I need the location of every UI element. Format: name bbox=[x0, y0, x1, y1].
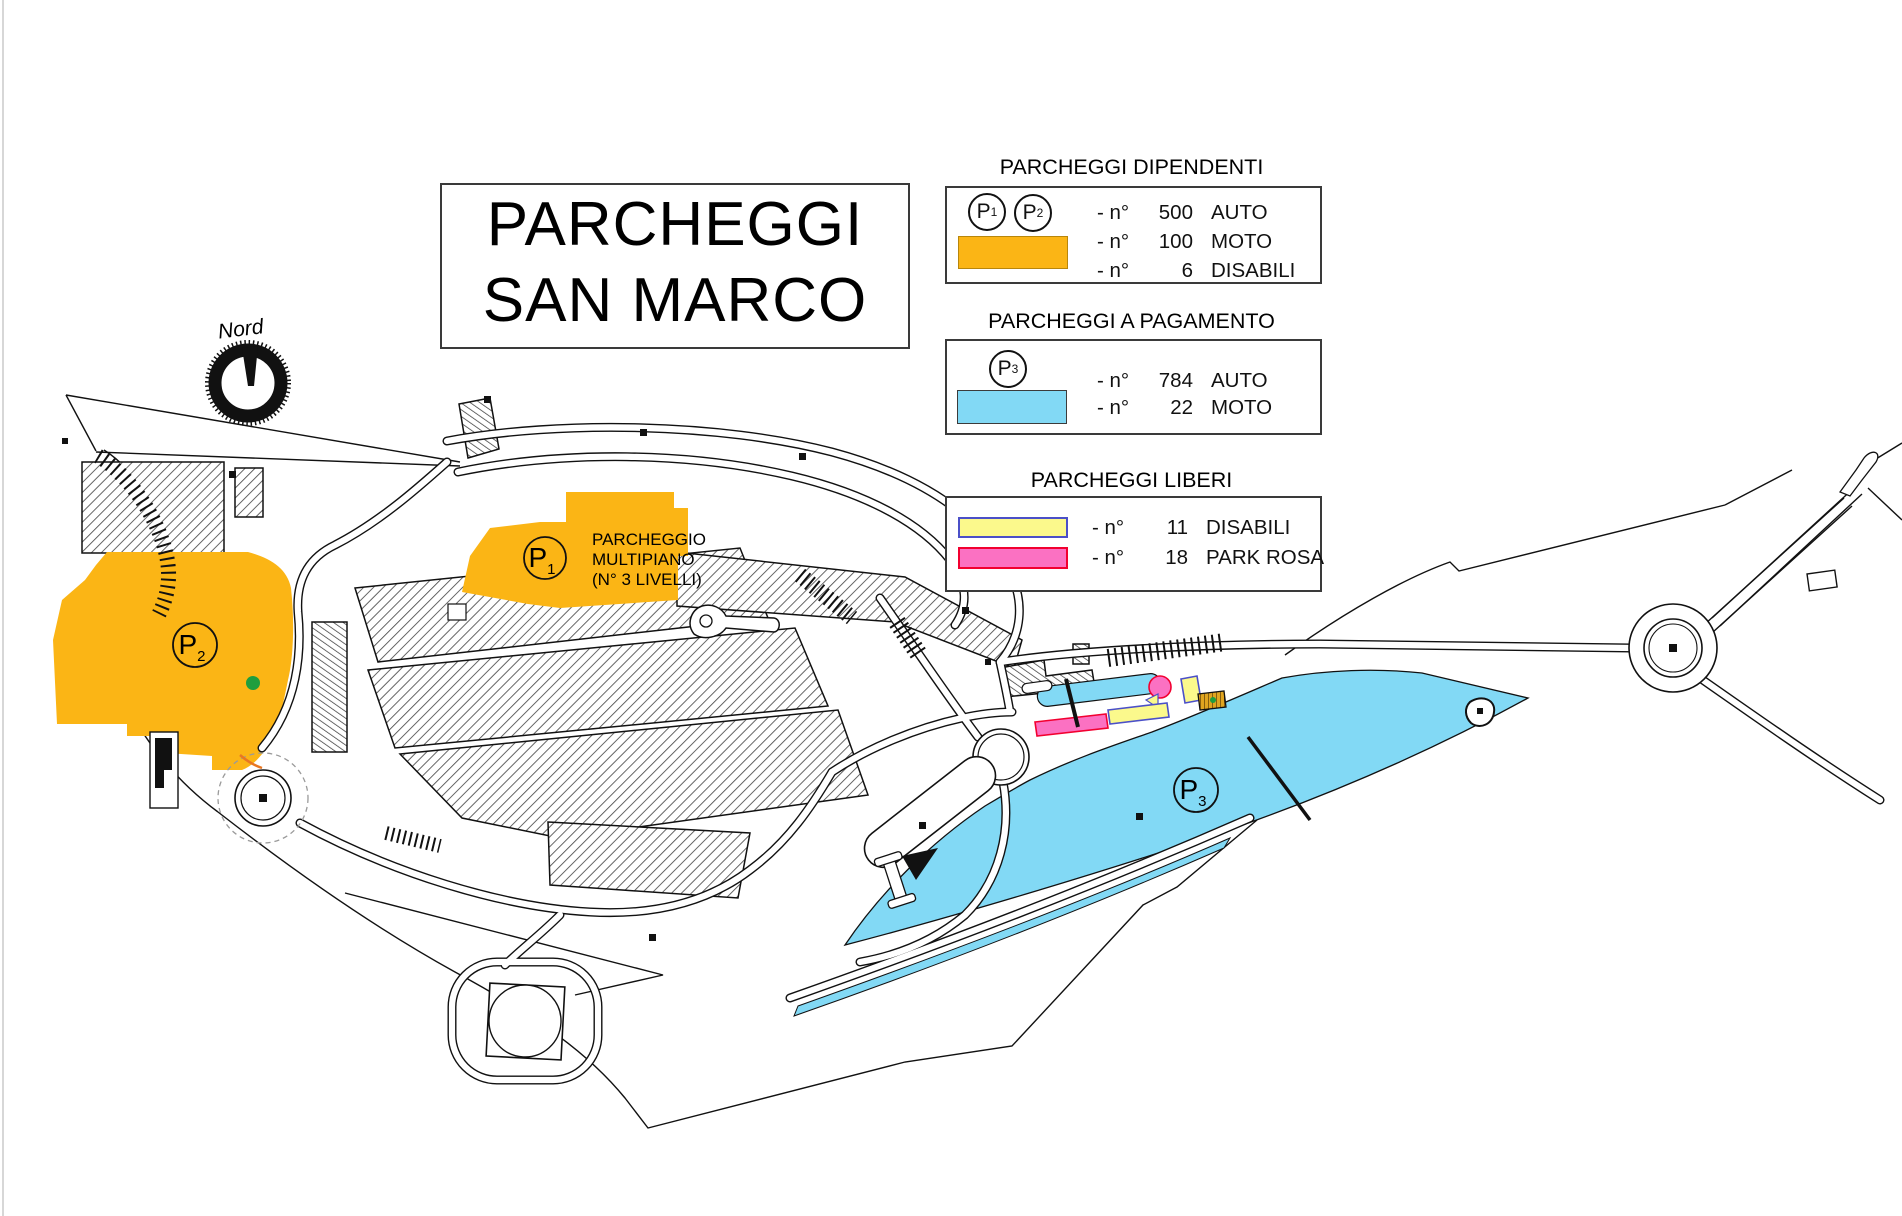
building bbox=[235, 468, 263, 517]
tree-dot bbox=[246, 676, 260, 690]
building bbox=[312, 622, 347, 752]
keyhole-circle bbox=[700, 615, 712, 627]
legend-row: - n°18PARK ROSA bbox=[1092, 546, 1324, 570]
building bbox=[82, 462, 224, 553]
legend-dipendenti-box: P1 P2 - n°500AUTO - n°100MOTO - n°6DISAB… bbox=[945, 186, 1322, 284]
small-white-square bbox=[448, 604, 466, 620]
legend-p3-symbol: P3 bbox=[989, 350, 1027, 388]
legend-p1-symbol: P1 bbox=[968, 193, 1006, 231]
legend-row: - n°6DISABILI bbox=[1097, 259, 1295, 283]
island-square-circle bbox=[486, 983, 565, 1060]
page-title: PARCHEGGI SAN MARCO bbox=[440, 183, 910, 349]
legend-row: - n°784AUTO bbox=[1097, 369, 1268, 393]
page-edge-left bbox=[2, 0, 4, 1216]
legend-swatch-pink bbox=[958, 547, 1068, 569]
title-line-1: PARCHEGGI bbox=[442, 187, 908, 263]
legend-swatch-yellow bbox=[958, 517, 1068, 538]
parking-plan-page: Nord P1 P2 P3 PARCHEGGIO MULTIPIANO (N° … bbox=[0, 0, 1902, 1216]
legend-pagamento-box: P3 - n°784AUTO - n°22MOTO bbox=[945, 339, 1322, 435]
building bbox=[459, 398, 499, 458]
site-plan-map: Nord P1 P2 P3 PARCHEGGIO MULTIPIANO (N° … bbox=[0, 0, 1902, 1216]
legend-row: - n°100MOTO bbox=[1097, 230, 1272, 254]
compass-needle bbox=[242, 346, 258, 386]
disabled-strip-yellow bbox=[1108, 703, 1169, 724]
roundabout-east bbox=[1629, 604, 1717, 692]
svg-text:(N° 3 LIVELLI): (N° 3 LIVELLI) bbox=[592, 570, 702, 589]
legend-row: - n°500AUTO bbox=[1097, 201, 1268, 225]
legend-row: - n°11DISABILI bbox=[1092, 516, 1290, 540]
title-line-2: SAN MARCO bbox=[442, 263, 908, 339]
parking-ticks bbox=[386, 833, 440, 846]
park-rosa-strip bbox=[1035, 714, 1108, 736]
compass-label: Nord bbox=[217, 315, 266, 344]
legend-swatch-blue bbox=[957, 390, 1067, 424]
legend-liberi-header: PARCHEGGI LIBERI bbox=[945, 468, 1318, 493]
legend-swatch-orange bbox=[958, 236, 1068, 269]
outbuilding-east bbox=[1807, 570, 1837, 591]
svg-text:MULTIPIANO: MULTIPIANO bbox=[592, 550, 695, 569]
legend-pagamento-header: PARCHEGGI A PAGAMENTO bbox=[945, 309, 1318, 334]
highway-ramp bbox=[1694, 452, 1878, 642]
p1-info-text: PARCHEGGIO MULTIPIANO (N° 3 LIVELLI) bbox=[592, 530, 706, 589]
park-rosa-blob bbox=[1149, 676, 1171, 698]
svg-text:PARCHEGGIO: PARCHEGGIO bbox=[592, 530, 706, 549]
legend-dipendenti-header: PARCHEGGI DIPENDENTI bbox=[945, 155, 1318, 180]
tree-dot bbox=[1210, 697, 1216, 703]
ramp-trumpet bbox=[1840, 452, 1878, 496]
legend-liberi-box: - n°11DISABILI - n°18PARK ROSA bbox=[945, 496, 1322, 592]
legend-row: - n°22MOTO bbox=[1097, 396, 1272, 420]
north-compass: Nord bbox=[207, 315, 289, 424]
legend-p2-symbol: P2 bbox=[1014, 194, 1052, 232]
